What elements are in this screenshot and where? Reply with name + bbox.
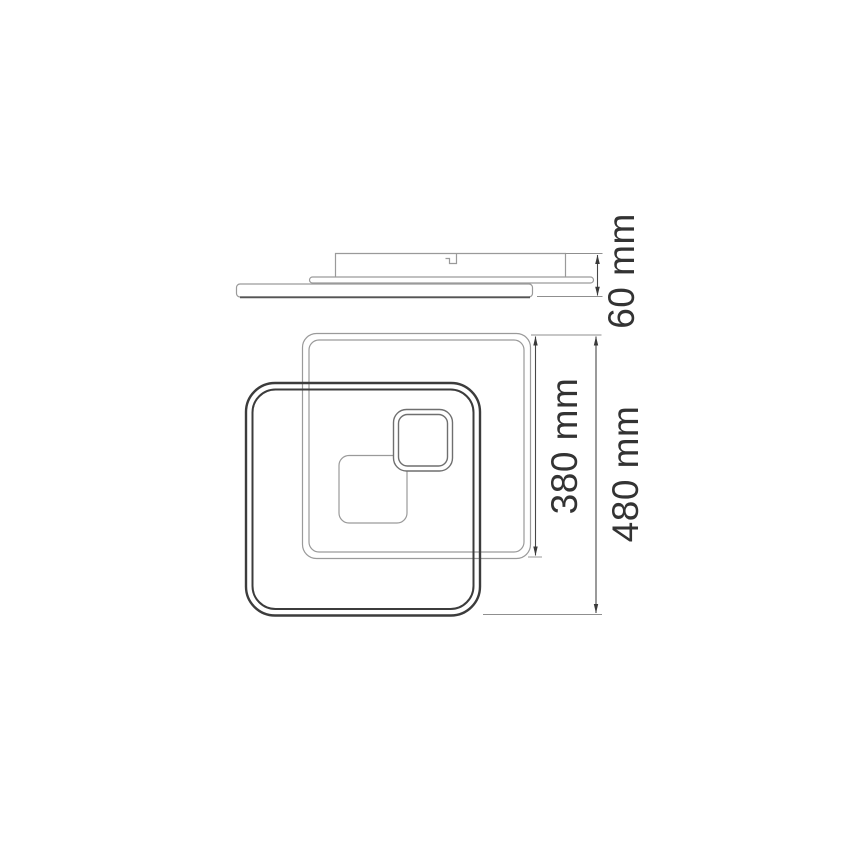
side-view: 60 mm xyxy=(237,213,643,329)
arrowhead-480-bottom xyxy=(594,604,598,613)
arrowhead-60-bottom xyxy=(595,287,600,296)
dimension-label-480mm: 480 mm xyxy=(605,406,646,543)
front-plate xyxy=(237,284,533,297)
cable-notch xyxy=(446,254,457,264)
diffuser-plate xyxy=(310,277,594,283)
mounting-box-outline xyxy=(336,254,566,277)
arrowhead-60-top xyxy=(595,255,600,264)
arrowhead-480-top xyxy=(594,336,598,345)
ceiling-light-dimension-drawing: 60 mm 380 mm xyxy=(0,0,868,868)
small-square-front-outer xyxy=(394,410,453,472)
arrowhead-380-bottom xyxy=(533,547,537,556)
front-view: 380 mm 480 mm xyxy=(246,334,646,616)
dimension-label-380mm: 380 mm xyxy=(544,378,585,515)
arrowhead-380-top xyxy=(533,336,537,345)
dimension-drawing-canvas: 60 mm 380 mm xyxy=(0,0,868,868)
dimension-label-60mm: 60 mm xyxy=(601,213,642,329)
